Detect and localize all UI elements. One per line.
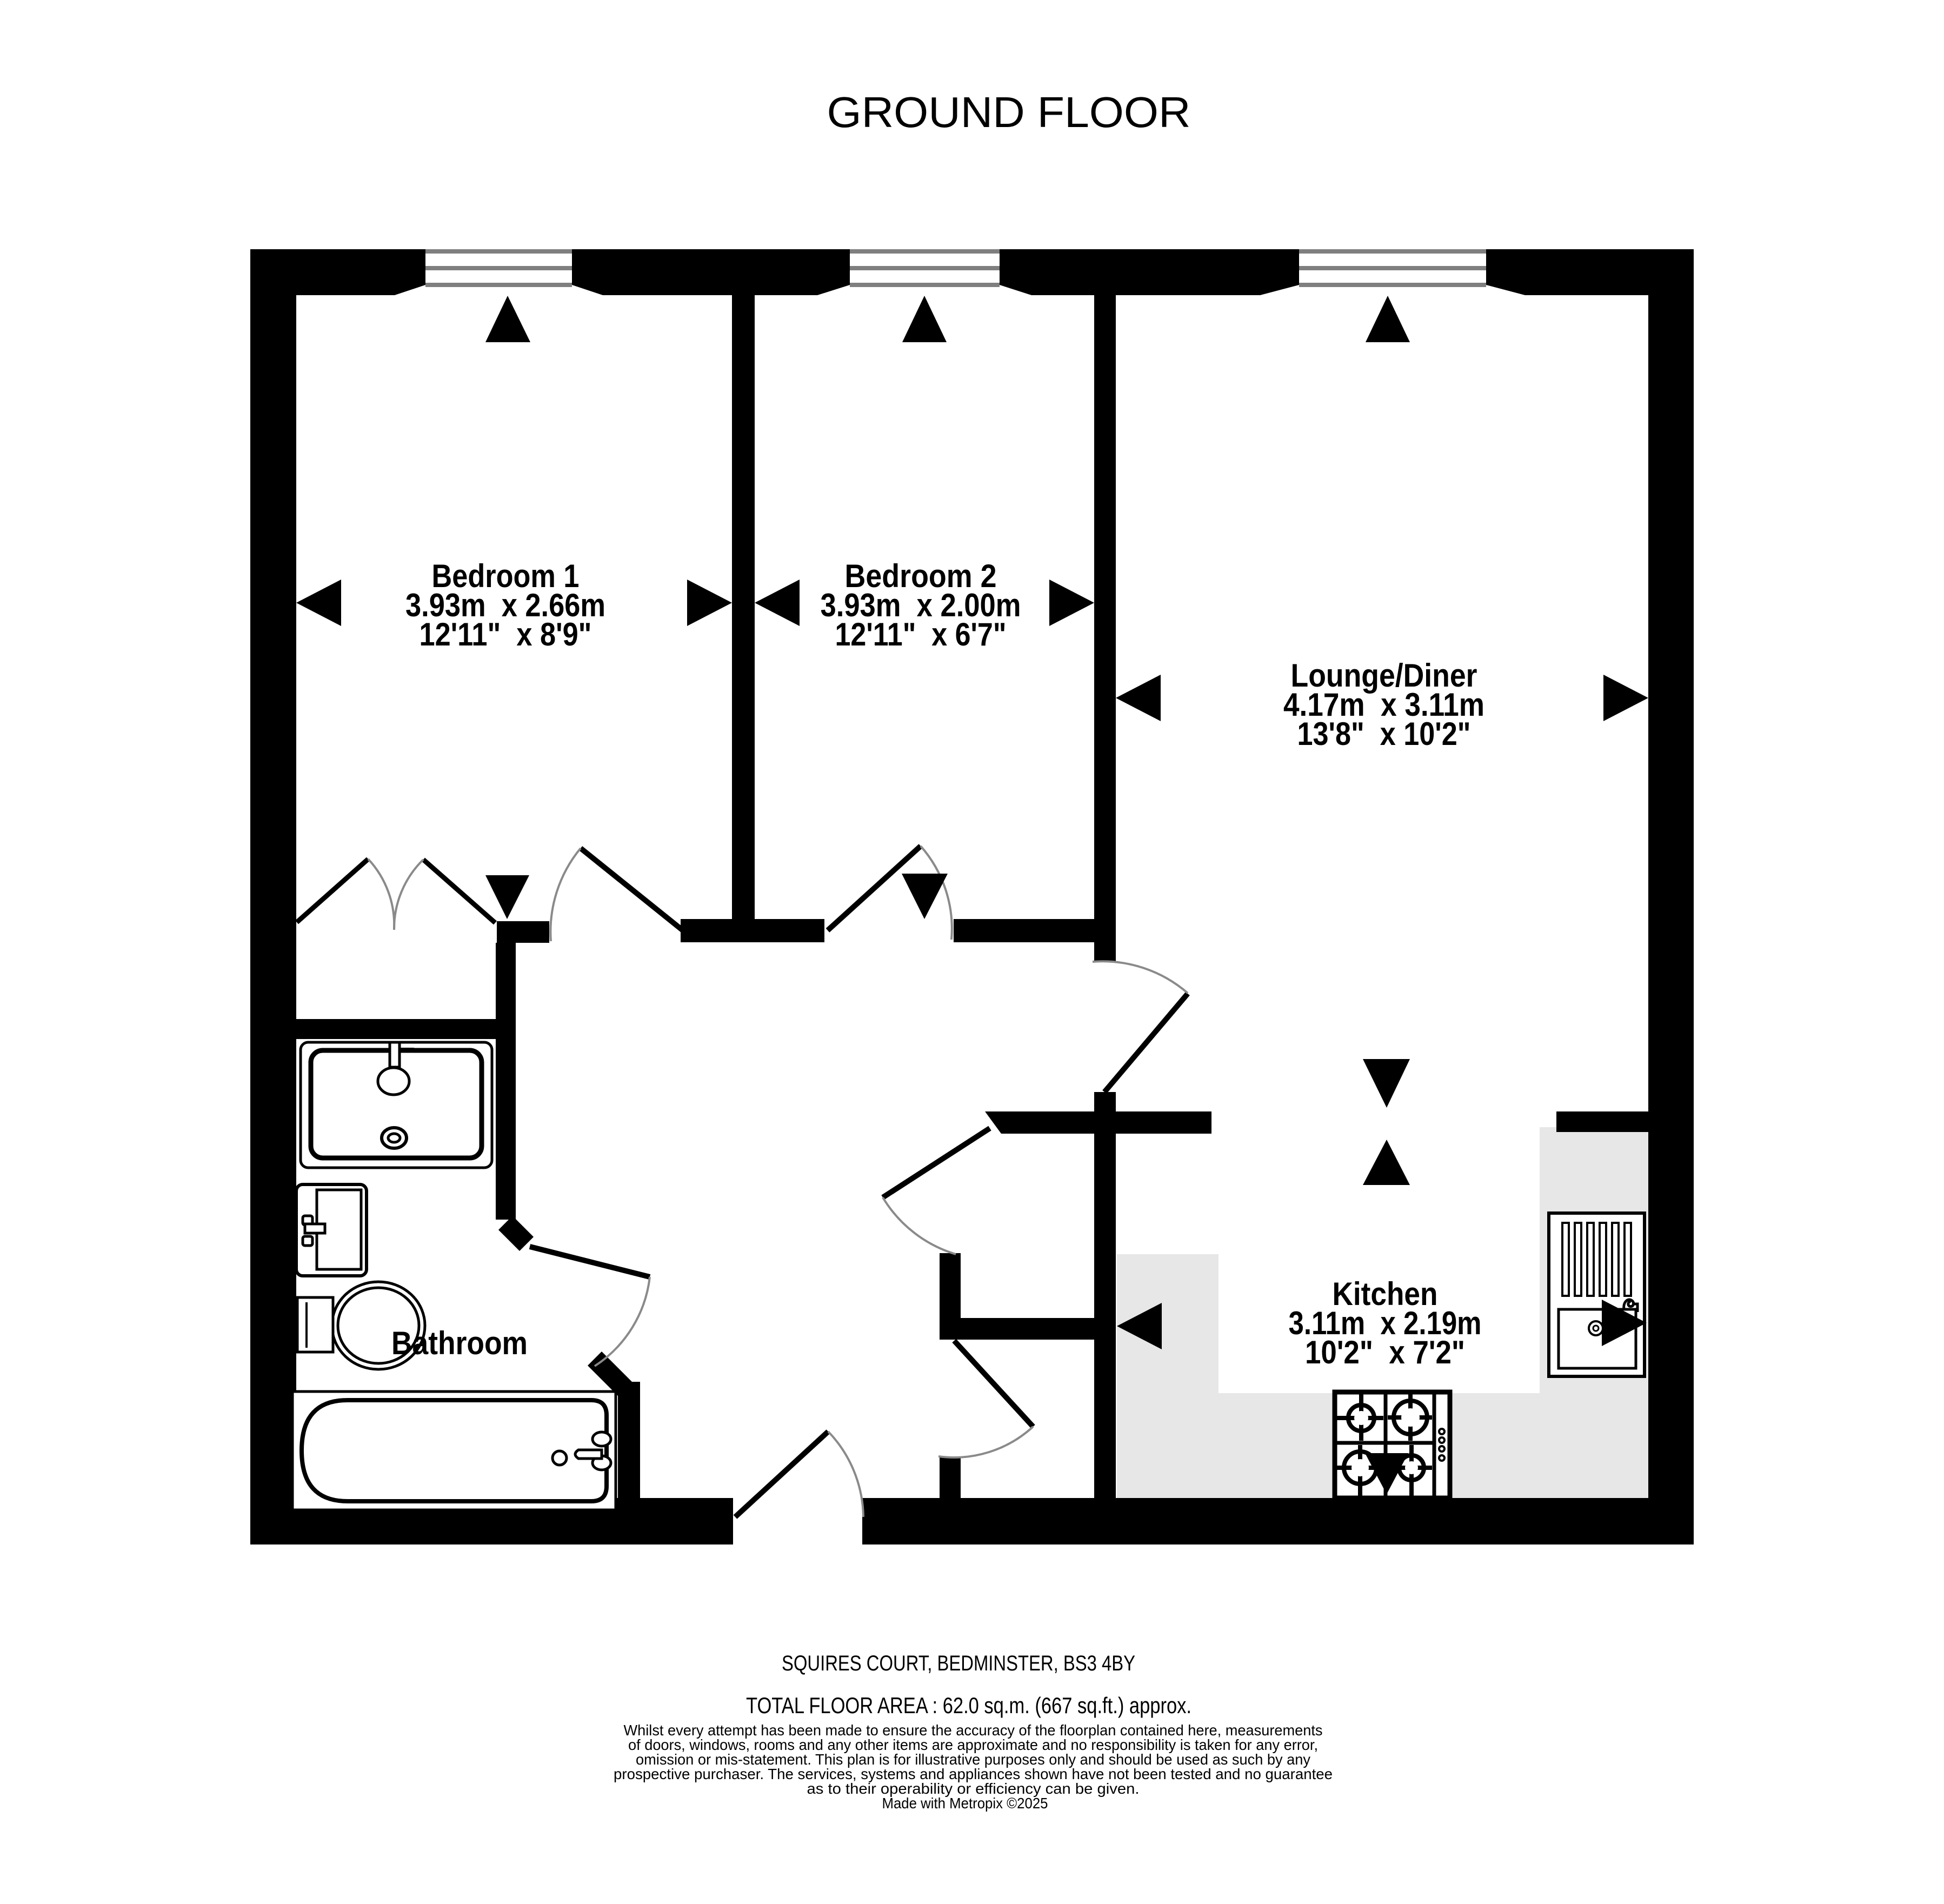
svg-text:12'11" x 6'7": 12'11" x 6'7" [835,616,1007,653]
svg-text:SQUIRES COURT, BEDMINSTER, BS3: SQUIRES COURT, BEDMINSTER, BS3 4BY [782,1652,1135,1675]
svg-text:Bathroom: Bathroom [391,1325,528,1361]
svg-text:Made with Metropix ©2025: Made with Metropix ©2025 [882,1795,1048,1812]
svg-text:TOTAL FLOOR AREA : 62.0 sq.m.: TOTAL FLOOR AREA : 62.0 sq.m. (667 sq.ft… [746,1693,1191,1718]
svg-text:10'2" x 7'2": 10'2" x 7'2" [1305,1334,1465,1370]
svg-text:12'11" x 8'9": 12'11" x 8'9" [420,616,592,653]
svg-text:GROUND FLOOR: GROUND FLOOR [827,88,1191,136]
svg-text:13'8" x 10'2": 13'8" x 10'2" [1297,716,1471,752]
